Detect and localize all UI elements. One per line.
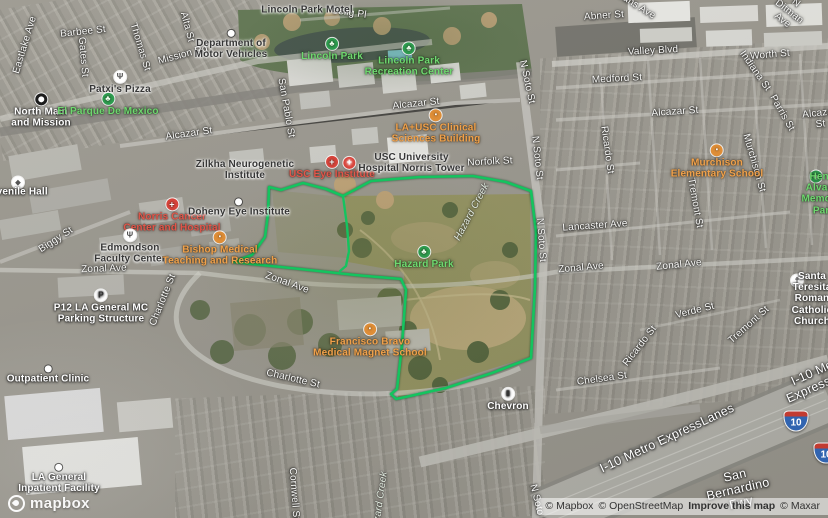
poi-la-general-inpatient-facility-icon bbox=[55, 464, 62, 471]
map-label-poi-usc-eye-institute: +USC Eye Institute bbox=[289, 156, 375, 180]
map-label-street-ricardo-st-south: Ricardo St bbox=[621, 324, 659, 369]
openstreetmap-attribution[interactable]: © OpenStreetMap bbox=[598, 500, 683, 512]
satellite-texture-south bbox=[175, 386, 545, 518]
street-abner-st-text: Abner St bbox=[584, 9, 625, 23]
map-label-poi-chevron: ▮Chevron bbox=[487, 388, 529, 412]
map-label-motorway-i10-metro-expresslanes: I-10 Metro ExpressLanes bbox=[598, 401, 737, 476]
maxar-attribution[interactable]: © Maxar bbox=[780, 500, 820, 512]
map-label-waterway-hazard-creek-2: Hazard Creek bbox=[370, 471, 390, 518]
map-label-poi-el-parque-de-mexico: ♣El Parque De Mexico bbox=[57, 93, 158, 117]
poi-edmondson-faculty-center-text: Edmondson Faculty Center bbox=[94, 242, 166, 264]
mapbox-logo-text: mapbox bbox=[30, 495, 90, 512]
map-label-street-zonal-ave-1: Zonal Ave bbox=[81, 263, 127, 276]
central-juvenile-hall-icon: ◆ bbox=[12, 177, 24, 189]
satellite-texture-northwest bbox=[0, 0, 280, 161]
poi-hazard-park-icon: ♣ bbox=[418, 246, 430, 258]
poi-usc-university-hospital-norris-tower-text: USC University Hospital Norris Tower bbox=[358, 152, 464, 174]
street-indiana-st-text: Indiana St bbox=[737, 49, 773, 94]
map-label-street-chelsea-st: Chelsea St bbox=[576, 370, 627, 388]
poi-la-general-inpatient-facility-text: LA General Inpatient Facility bbox=[18, 472, 100, 494]
poi-norris-cancer-center-and-hospital-text: Norris Cancer Center and Hospital bbox=[123, 211, 220, 233]
satellite-texture-east bbox=[540, 38, 828, 415]
map-label-street-gates-st: Gates St bbox=[76, 37, 91, 78]
street-charlotte-st-south-text: Charlotte St bbox=[265, 367, 321, 390]
waterway-hazard-creek-2-text: Hazard Creek bbox=[370, 471, 390, 518]
map-label-street-alta-st: Alta St bbox=[178, 11, 197, 43]
santa-teresita-church-icon: † bbox=[791, 275, 803, 287]
poi-doheny-eye-institute-text: Doheny Eye Institute bbox=[188, 206, 290, 217]
map-label-street-tremont-st-south: Tremont St bbox=[726, 304, 771, 346]
poi-lincoln-park-icon: ♣ bbox=[326, 38, 338, 50]
map-label-poi-edmondson-faculty-center: ΨEdmondson Faculty Center bbox=[94, 229, 166, 264]
poi-usc-eye-institute-text: USC Eye Institute bbox=[289, 169, 375, 180]
poi-patxis-pizza-icon: Ψ bbox=[114, 71, 126, 83]
street-san-pablo-st-text: San Pablo St bbox=[275, 77, 296, 138]
poi-hazard-park-text: Hazard Park bbox=[394, 259, 453, 270]
map-label-street-n-ditman-ave: N Ditman Ave bbox=[763, 0, 814, 37]
map-label-poi-outpatient-clinic: Outpatient Clinic bbox=[7, 365, 90, 384]
mapbox-attribution[interactable]: © Mapbox bbox=[545, 500, 593, 512]
poi-murchison-elementary-school-text: Murchison Elementary School bbox=[671, 157, 764, 179]
map-label-waterway-hazard-creek-1: Hazard Creek bbox=[452, 181, 492, 242]
map-label-street-biggy-st: Biggy St bbox=[37, 225, 75, 255]
street-tremont-st-south-text: Tremont St bbox=[726, 304, 771, 346]
map-label-street-evans-ave: Evans Ave bbox=[611, 0, 658, 22]
street-n-soto-st-1-text: N Soto St bbox=[517, 59, 537, 105]
map-label-street-n-soto-st-1: N Soto St bbox=[517, 59, 537, 105]
map-label-poi-usc-university-hospital-norris-tower: +USC University Hospital Norris Tower bbox=[343, 152, 464, 174]
poi-norris-cancer-center-and-hospital-icon: + bbox=[166, 198, 178, 210]
street-norfolk-st-text: Norfolk St bbox=[467, 155, 513, 169]
motorway-i10-metro-expresslanes-edge-text: I-10 Metro ExpressLanes bbox=[778, 346, 828, 405]
map-label-street-eastlake-ave: Eastlake Ave bbox=[11, 15, 39, 75]
poi-el-parque-de-mexico-icon: ♣ bbox=[102, 93, 114, 105]
map-canvas[interactable]: mapbox © Mapbox© OpenStreetMapImprove th… bbox=[0, 0, 828, 518]
street-alcazar-st-center-text: Alcazar St bbox=[392, 96, 440, 112]
poi-chevron-icon: ▮ bbox=[502, 388, 514, 400]
mapbox-logo[interactable]: mapbox bbox=[8, 495, 90, 512]
poi-francisco-bravo-medical-magnet-school-text: Francisco Bravo Medical Magnet School bbox=[313, 336, 427, 358]
map-label-street-selig-pl: Selig Pl bbox=[331, 5, 367, 21]
map-label-street-tremont-st-north: Tremont St bbox=[685, 177, 705, 229]
map-label-street-alcazar-st-center: Alcazar St bbox=[392, 96, 440, 112]
street-gates-st-text: Gates St bbox=[76, 37, 91, 78]
map-label-poi-murchison-elementary-school: ▪Murchison Elementary School bbox=[671, 144, 764, 179]
map-label-street-alcazar-st-edge: Alcazar St bbox=[802, 106, 828, 132]
street-evans-ave-text: Evans Ave bbox=[611, 0, 658, 22]
poi-p12-la-general-mc-parking-structure-text: P12 LA General MC Parking Structure bbox=[54, 302, 148, 324]
map-label-street-cornwell-st: Cornwell St bbox=[287, 467, 302, 518]
street-chelsea-st-text: Chelsea St bbox=[576, 370, 627, 388]
interstate-10-shield: 10 bbox=[784, 411, 809, 432]
street-zonal-ave-2-text: Zonal Ave bbox=[264, 270, 311, 296]
henry-alvarez-memorial-park-marker: ♣ bbox=[810, 171, 822, 184]
satellite-imagery bbox=[0, 0, 828, 518]
poi-north-main-and-mission-icon bbox=[35, 93, 47, 105]
map-label-poi-norris-cancer-center-and-hospital: +Norris Cancer Center and Hospital bbox=[123, 198, 220, 233]
street-mission-rd-text: Mission Rd bbox=[157, 43, 209, 67]
henry-alvarez-memorial-park-icon: ♣ bbox=[810, 171, 822, 183]
map-label-street-san-pablo-st: San Pablo St bbox=[275, 77, 296, 138]
map-label-street-zonal-ave-2: Zonal Ave bbox=[264, 270, 311, 296]
map-label-poi-lincoln-park-recreation-center: ♣Lincoln Park Recreation Center bbox=[365, 42, 454, 77]
poi-department-of-motor-vehicles-icon bbox=[228, 30, 235, 37]
street-worth-st-text: Worth St bbox=[750, 48, 791, 63]
map-label-street-valley-blvd: Valley Blvd bbox=[628, 44, 679, 58]
poi-outpatient-clinic-icon bbox=[45, 365, 52, 372]
map-label-street-alcazar-st-left: Alcazar St bbox=[165, 125, 213, 143]
waterway-hazard-creek-1-text: Hazard Creek bbox=[452, 181, 492, 242]
street-alcazar-st-edge-text: Alcazar St bbox=[802, 106, 828, 132]
map-label-street-murchison-st: Murchison St bbox=[740, 133, 767, 194]
poi-el-parque-de-mexico-text: El Parque De Mexico bbox=[57, 106, 158, 117]
map-label-street-mission-rd: Mission Rd bbox=[157, 43, 209, 67]
map-label-poi-patxis-pizza: ΨPatxi's Pizza bbox=[89, 71, 151, 95]
poi-chevron-text: Chevron bbox=[487, 401, 529, 412]
poi-lincoln-park-recreation-center-icon: ♣ bbox=[403, 42, 415, 54]
map-label-street-charlotte-st-south: Charlotte St bbox=[265, 367, 321, 390]
map-label-street-worth-st: Worth St bbox=[750, 48, 791, 63]
map-label-motorway-i10-metro-expresslanes-edge: I-10 Metro ExpressLanes bbox=[778, 346, 828, 405]
street-lancaster-ave-text: Lancaster Ave bbox=[562, 218, 628, 234]
street-murchison-st-text: Murchison St bbox=[740, 133, 767, 194]
map-label-street-n-soto-st-2: N Soto St bbox=[529, 135, 545, 180]
map-label-street-parris-st: Parris St bbox=[767, 93, 797, 133]
street-zonal-ave-1-text: Zonal Ave bbox=[81, 263, 127, 276]
street-alcazar-st-left-text: Alcazar St bbox=[165, 125, 213, 143]
street-zonal-ave-3-text: Zonal Ave bbox=[558, 260, 604, 275]
map-label-street-indiana-st: Indiana St bbox=[737, 49, 773, 94]
street-zonal-ave-4-text: Zonal Ave bbox=[656, 257, 703, 273]
map-label-poi-department-of-motor-vehicles: Department of Motor Vehicles bbox=[195, 30, 268, 60]
map-label-street-lancaster-ave: Lancaster Ave bbox=[562, 218, 628, 234]
street-tremont-st-north-text: Tremont St bbox=[685, 177, 705, 229]
hazard-park-boundary bbox=[0, 0, 828, 518]
map-label-street-medford-st: Medford St bbox=[592, 72, 643, 86]
map-label-poi-doheny-eye-institute: Doheny Eye Institute bbox=[188, 198, 290, 217]
street-n-ditman-ave-text: N Ditman Ave bbox=[763, 0, 814, 37]
attribution-bar: © Mapbox© OpenStreetMapImprove this map©… bbox=[537, 498, 828, 515]
poi-edmondson-faculty-center-icon: Ψ bbox=[124, 229, 136, 241]
improve-this-map-link[interactable]: Improve this map bbox=[688, 500, 775, 512]
street-ricardo-st-south-text: Ricardo St bbox=[621, 324, 659, 369]
interstate-10-shield-clipped: 10 bbox=[814, 443, 828, 464]
poi-murchison-elementary-school-icon: ▪ bbox=[711, 144, 723, 156]
map-label-poi-north-main-and-mission: North Main and Mission bbox=[11, 93, 70, 128]
poi-department-of-motor-vehicles-text: Department of Motor Vehicles bbox=[195, 38, 268, 60]
street-valley-blvd-text: Valley Blvd bbox=[628, 44, 679, 58]
poi-lincoln-park-text: Lincoln Park bbox=[301, 51, 363, 62]
map-label-street-n-soto-st-3: N Soto St bbox=[534, 218, 548, 263]
map-label-street-ricardo-st-north: Ricardo St bbox=[598, 125, 616, 174]
imagery-tone-overlay bbox=[0, 0, 828, 518]
map-label-street-barbee-st: Barbee St bbox=[60, 24, 107, 40]
map-label-street-thomas-st: Thomas St bbox=[127, 22, 152, 73]
map-label-street-abner-st: Abner St bbox=[584, 9, 625, 23]
street-thomas-st-text: Thomas St bbox=[127, 22, 152, 73]
map-label-poi-hazard-park: ♣Hazard Park bbox=[394, 246, 453, 270]
poi-zilkha-neurogenetic-institute-text: Zilkha Neurogenetic Institute bbox=[196, 159, 294, 181]
poi-bishop-medical-teaching-and-research-icon: ▪ bbox=[214, 231, 226, 243]
map-label-poi-p12-la-general-mc-parking-structure: PP12 LA General MC Parking Structure bbox=[54, 289, 148, 324]
street-eastlake-ave-text: Eastlake Ave bbox=[11, 15, 39, 75]
poi-doheny-eye-institute-icon bbox=[236, 198, 243, 205]
poi-p12-la-general-mc-parking-structure-icon: P bbox=[95, 289, 107, 301]
map-label-poi-francisco-bravo-medical-magnet-school: ▪Francisco Bravo Medical Magnet School bbox=[313, 323, 427, 358]
poi-usc-university-hospital-norris-tower-icon: + bbox=[343, 157, 355, 169]
map-label-street-norfolk-st: Norfolk St bbox=[467, 155, 513, 169]
street-ricardo-st-north-text: Ricardo St bbox=[598, 125, 616, 174]
street-medford-st-text: Medford St bbox=[592, 72, 643, 86]
map-label-poi-lincoln-park: ♣Lincoln Park bbox=[301, 38, 363, 62]
poi-usc-eye-institute-icon: + bbox=[326, 156, 338, 168]
street-parris-st-text: Parris St bbox=[767, 93, 797, 133]
street-biggy-st-text: Biggy St bbox=[37, 225, 75, 255]
map-label-street-zonal-ave-4: Zonal Ave bbox=[656, 257, 703, 273]
map-label-street-charlotte-st-west: Charlotte St bbox=[148, 273, 179, 328]
map-label-poi-bishop-medical-teaching-and-research: ▪Bishop Medical Teaching and Research bbox=[163, 231, 278, 266]
map-label-street-alcazar-st-right: Alcazar St bbox=[651, 105, 699, 119]
map-label-poi-la-usc-clinical-sciences-building: ▪LA+USC Clinical Sciences Building bbox=[392, 109, 481, 144]
mapbox-logo-icon bbox=[8, 495, 25, 512]
street-barbee-st-text: Barbee St bbox=[60, 24, 107, 40]
map-label-poi-lincoln-park-motel: Lincoln Park Motel bbox=[261, 4, 353, 15]
street-cornwell-st-text: Cornwell St bbox=[287, 467, 302, 518]
street-alta-st-text: Alta St bbox=[178, 11, 197, 43]
poi-bishop-medical-teaching-and-research-text: Bishop Medical Teaching and Research bbox=[163, 244, 278, 266]
poi-patxis-pizza-text: Patxi's Pizza bbox=[89, 84, 151, 95]
map-label-poi-zilkha-neurogenetic-institute: Zilkha Neurogenetic Institute bbox=[196, 159, 294, 181]
poi-lincoln-park-motel-text: Lincoln Park Motel bbox=[261, 4, 353, 15]
street-alcazar-st-right-text: Alcazar St bbox=[651, 105, 699, 119]
poi-la-usc-clinical-sciences-building-text: LA+USC Clinical Sciences Building bbox=[392, 122, 481, 144]
street-selig-pl-text: Selig Pl bbox=[331, 5, 367, 21]
poi-francisco-bravo-medical-magnet-school-icon: ▪ bbox=[364, 323, 376, 335]
street-n-soto-st-2-text: N Soto St bbox=[529, 135, 545, 180]
motorway-i10-metro-expresslanes-text: I-10 Metro ExpressLanes bbox=[598, 401, 737, 476]
santa-teresita-church-marker: † bbox=[791, 275, 803, 288]
map-label-street-zonal-ave-3: Zonal Ave bbox=[558, 260, 604, 275]
poi-north-main-and-mission-text: North Main and Mission bbox=[11, 106, 70, 128]
poi-la-usc-clinical-sciences-building-icon: ▪ bbox=[430, 109, 442, 121]
map-label-street-verde-st: Verde St bbox=[674, 301, 715, 321]
poi-lincoln-park-recreation-center-text: Lincoln Park Recreation Center bbox=[365, 55, 454, 77]
street-verde-st-text: Verde St bbox=[674, 301, 715, 321]
central-juvenile-hall-marker: ◆ bbox=[12, 177, 24, 190]
street-charlotte-st-west-text: Charlotte St bbox=[148, 273, 179, 328]
poi-outpatient-clinic-text: Outpatient Clinic bbox=[7, 373, 90, 384]
map-label-poi-la-general-inpatient-facility: LA General Inpatient Facility bbox=[18, 464, 100, 494]
street-n-soto-st-3-text: N Soto St bbox=[534, 218, 548, 263]
